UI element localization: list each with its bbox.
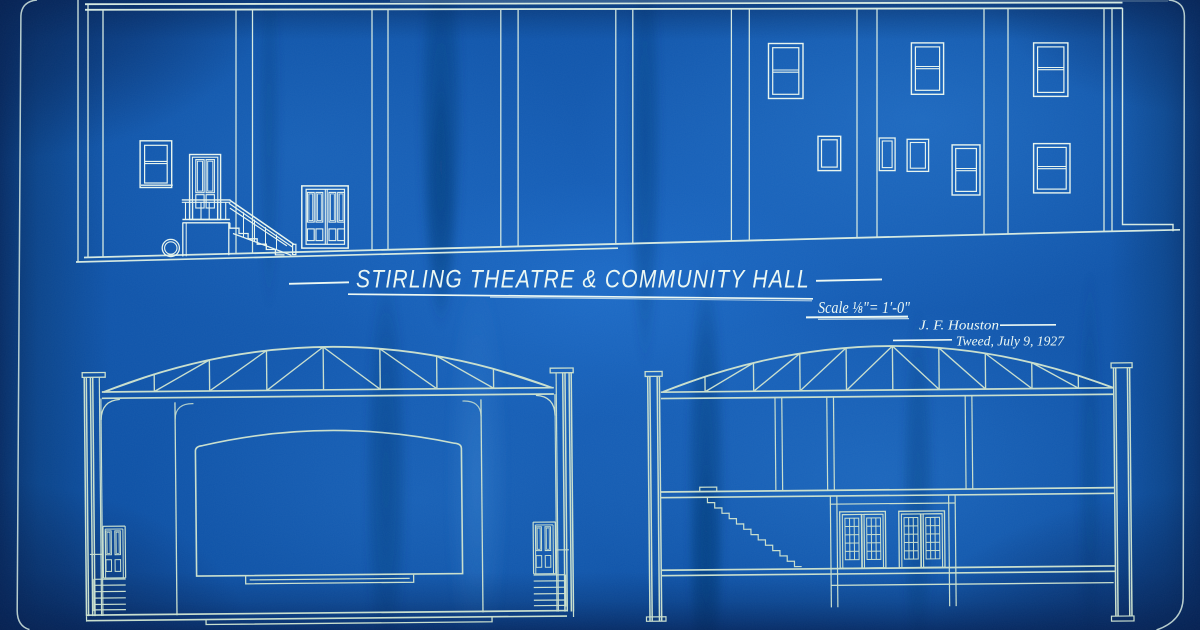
svg-text:J. F. Houston: J. F. Houston <box>919 318 999 333</box>
svg-text:STIRLING THEATRE & COMMUNITY H: STIRLING THEATRE & COMMUNITY HALL <box>356 266 810 294</box>
svg-text:Scale ⅛"= 1′-0": Scale ⅛"= 1′-0" <box>818 298 910 317</box>
svg-text:Tweed, July 9, 1927: Tweed, July 9, 1927 <box>956 334 1065 349</box>
